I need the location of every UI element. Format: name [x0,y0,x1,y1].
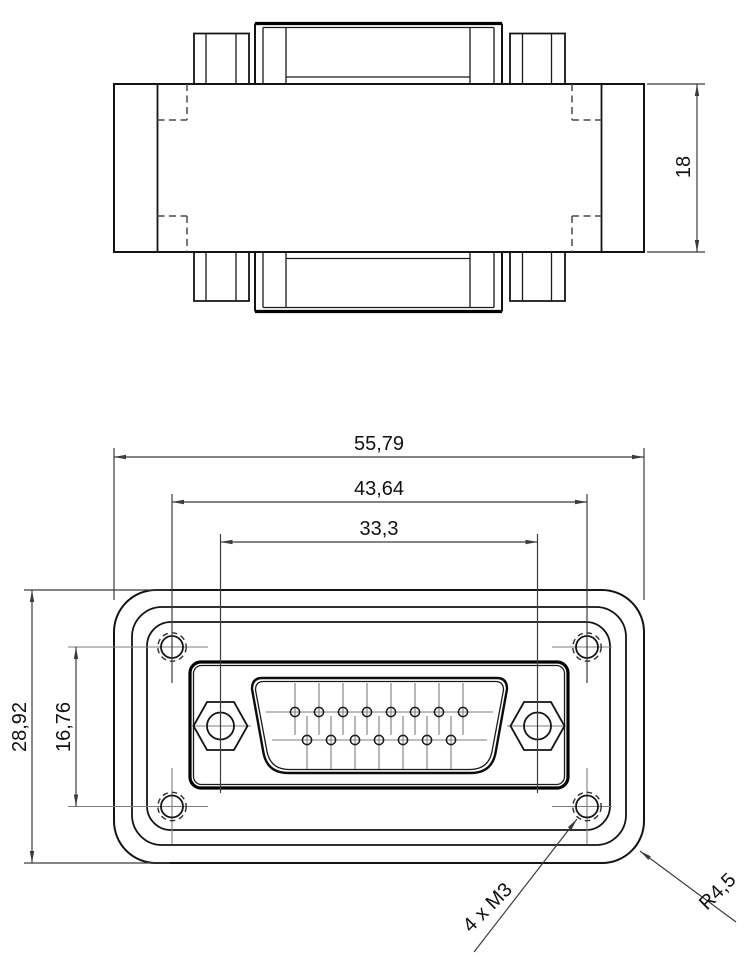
nut-outline [194,34,249,85]
dimension-value-333: 33,3 [360,518,399,540]
body-outline [114,84,644,252]
nut-outline [510,252,565,301]
dimension-value-4364: 43,64 [354,478,404,500]
leader-line [474,819,577,952]
dimension-value-1676: 16,76 [53,702,75,752]
dimension-value-5579: 55,79 [354,433,404,455]
jackscrew-nut-top-left [194,34,249,85]
dimension-overall-height: 28,92 [9,590,170,863]
jackscrew-nut-top-right [510,34,565,85]
mount-hole-top-right [552,633,612,661]
front-view: 55,79 43,64 33,3 28,92 16,76 [9,433,740,952]
pin-field [290,683,467,769]
dimension-body-height: 18 [647,84,705,252]
mount-hole-bottom-right [552,768,612,844]
leader-thread-note: 4 x M3 [459,819,577,952]
leader-corner-radius: R4,5 [640,851,740,922]
jackscrew-nut-bottom-right [510,252,565,301]
dshell-bottom-profile [255,252,502,312]
dimension-hole-spacing-vertical: 16,76 [53,647,76,807]
jackscrew-nut-bottom-left [194,252,249,301]
technical-drawing-page: 18 [0,0,750,967]
dsub-connector-drawing: 18 [0,0,750,967]
mount-hole-top-left [68,633,208,661]
corner-radius-text: R4,5 [695,869,740,914]
dshell-top-profile [255,24,502,85]
top-view: 18 [114,24,705,312]
dimension-value-2892: 28,92 [9,702,31,752]
nut-outline [194,252,249,301]
dimension-value-18: 18 [673,156,695,178]
nut-outline [510,34,565,85]
dimension-hole-spacing-horizontal: 43,64 [172,478,587,683]
dimension-overall-width: 55,79 [114,433,644,600]
hidden-hole-outlines [158,84,602,252]
